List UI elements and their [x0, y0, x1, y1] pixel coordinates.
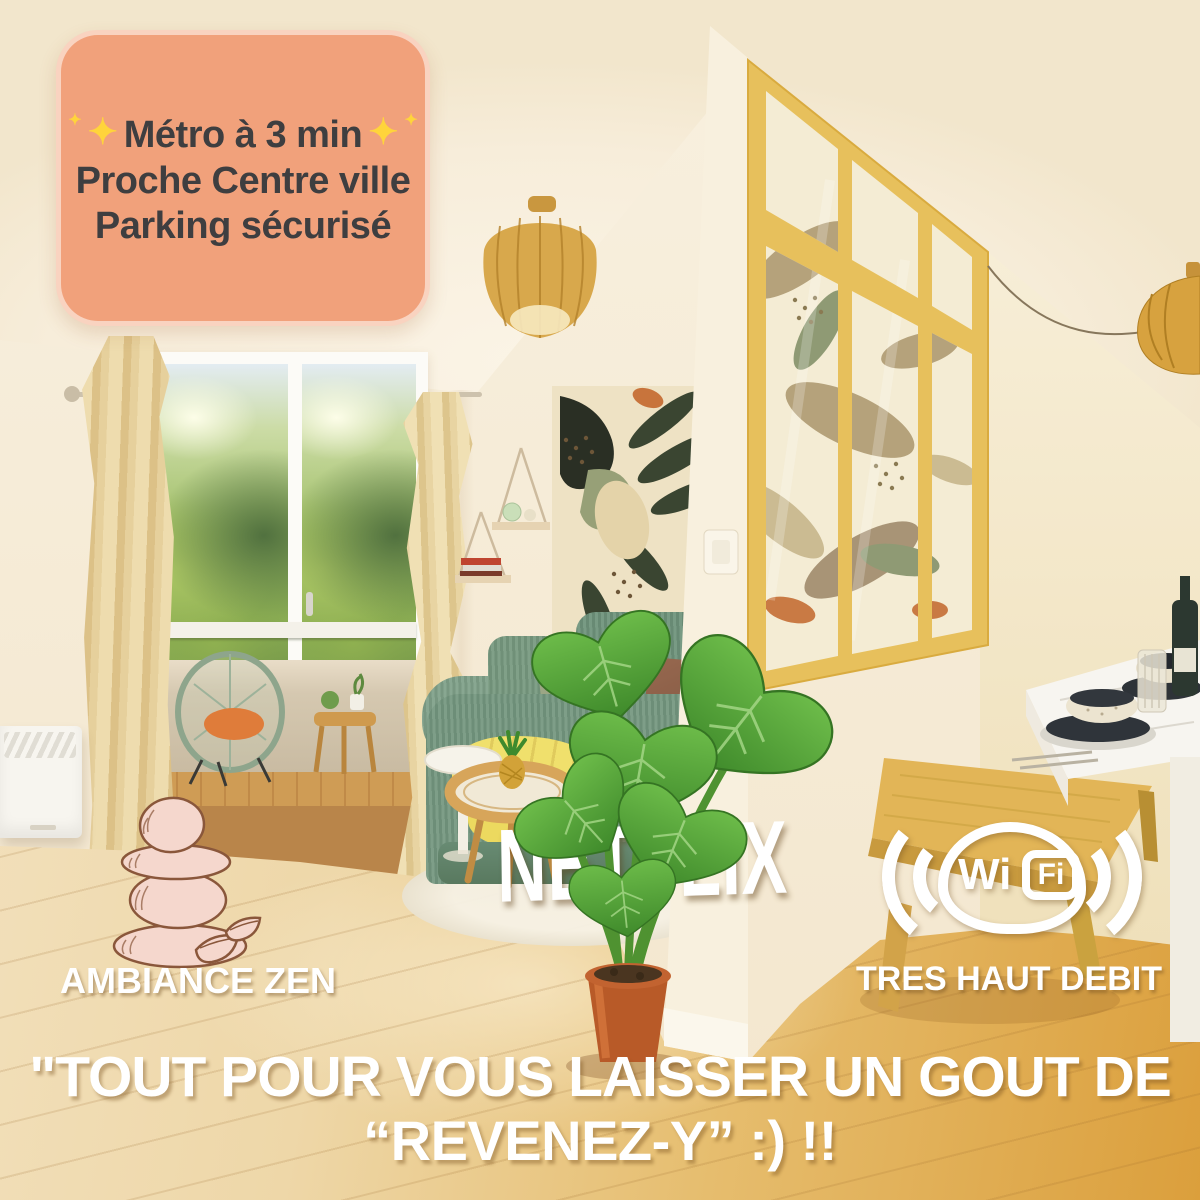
radiator-label: [30, 825, 56, 830]
wifi-wi-text: Wi: [958, 850, 1011, 900]
balcony-stool: [314, 674, 376, 774]
stone: [130, 872, 226, 928]
acapulco-chair: [178, 654, 282, 786]
caption-line-2: “REVENEZ-Y” :) !!: [0, 1108, 1200, 1173]
sparkle-icon: ✦: [68, 110, 81, 130]
badge-centre-ville-text: Proche Centre ville: [76, 159, 411, 205]
zen-stones-illustration: [92, 788, 267, 973]
wifi-logo: Wi Fi: [882, 800, 1142, 960]
wallpaper-monstera: [560, 396, 614, 489]
radiator-grille: [4, 732, 76, 758]
partition-glass-panes: [725, 91, 982, 671]
tres-haut-debit-label: TRES HAUT DEBIT: [856, 960, 1156, 999]
wallpaper-dots: [564, 436, 642, 598]
pot-soil: [594, 965, 662, 983]
listing-photo: NETFLIX: [0, 0, 1200, 1200]
badge-metro-text: Métro à 3 min: [124, 113, 362, 159]
wallpaper-through-glass: [725, 180, 982, 640]
netflix-wordmark: NETFLIX: [496, 799, 736, 926]
amenities-badge: ✦ ✦ Métro à 3 min ✦ ✦ Proche Centre vill…: [56, 30, 430, 326]
radiator: [0, 726, 82, 838]
hanging-shelf-upper: [492, 448, 550, 530]
badge-parking-text: Parking sécurisé: [95, 204, 391, 250]
light-switch: [704, 530, 738, 574]
sparkle-icon: ✦: [368, 111, 398, 153]
wifi-fi-text: Fi: [1038, 858, 1065, 892]
curtain-rod-finial: [64, 386, 80, 402]
sparkle-icon: ✦: [88, 111, 118, 153]
badge-line-1: ✦ ✦ Métro à 3 min ✦ ✦: [68, 113, 418, 159]
wifi-fi-box: Fi: [1022, 850, 1080, 900]
ambiance-zen-label: AMBIANCE ZEN: [60, 960, 336, 1002]
ceiling-lamp: [483, 196, 596, 338]
chair-cushion: [204, 708, 264, 740]
partition-frame: [748, 60, 988, 692]
caption-line-1: "TOUT POUR VOUS LAISSER UN GOUT DE: [0, 1044, 1200, 1110]
sparkle-icon: ✦: [404, 110, 417, 130]
